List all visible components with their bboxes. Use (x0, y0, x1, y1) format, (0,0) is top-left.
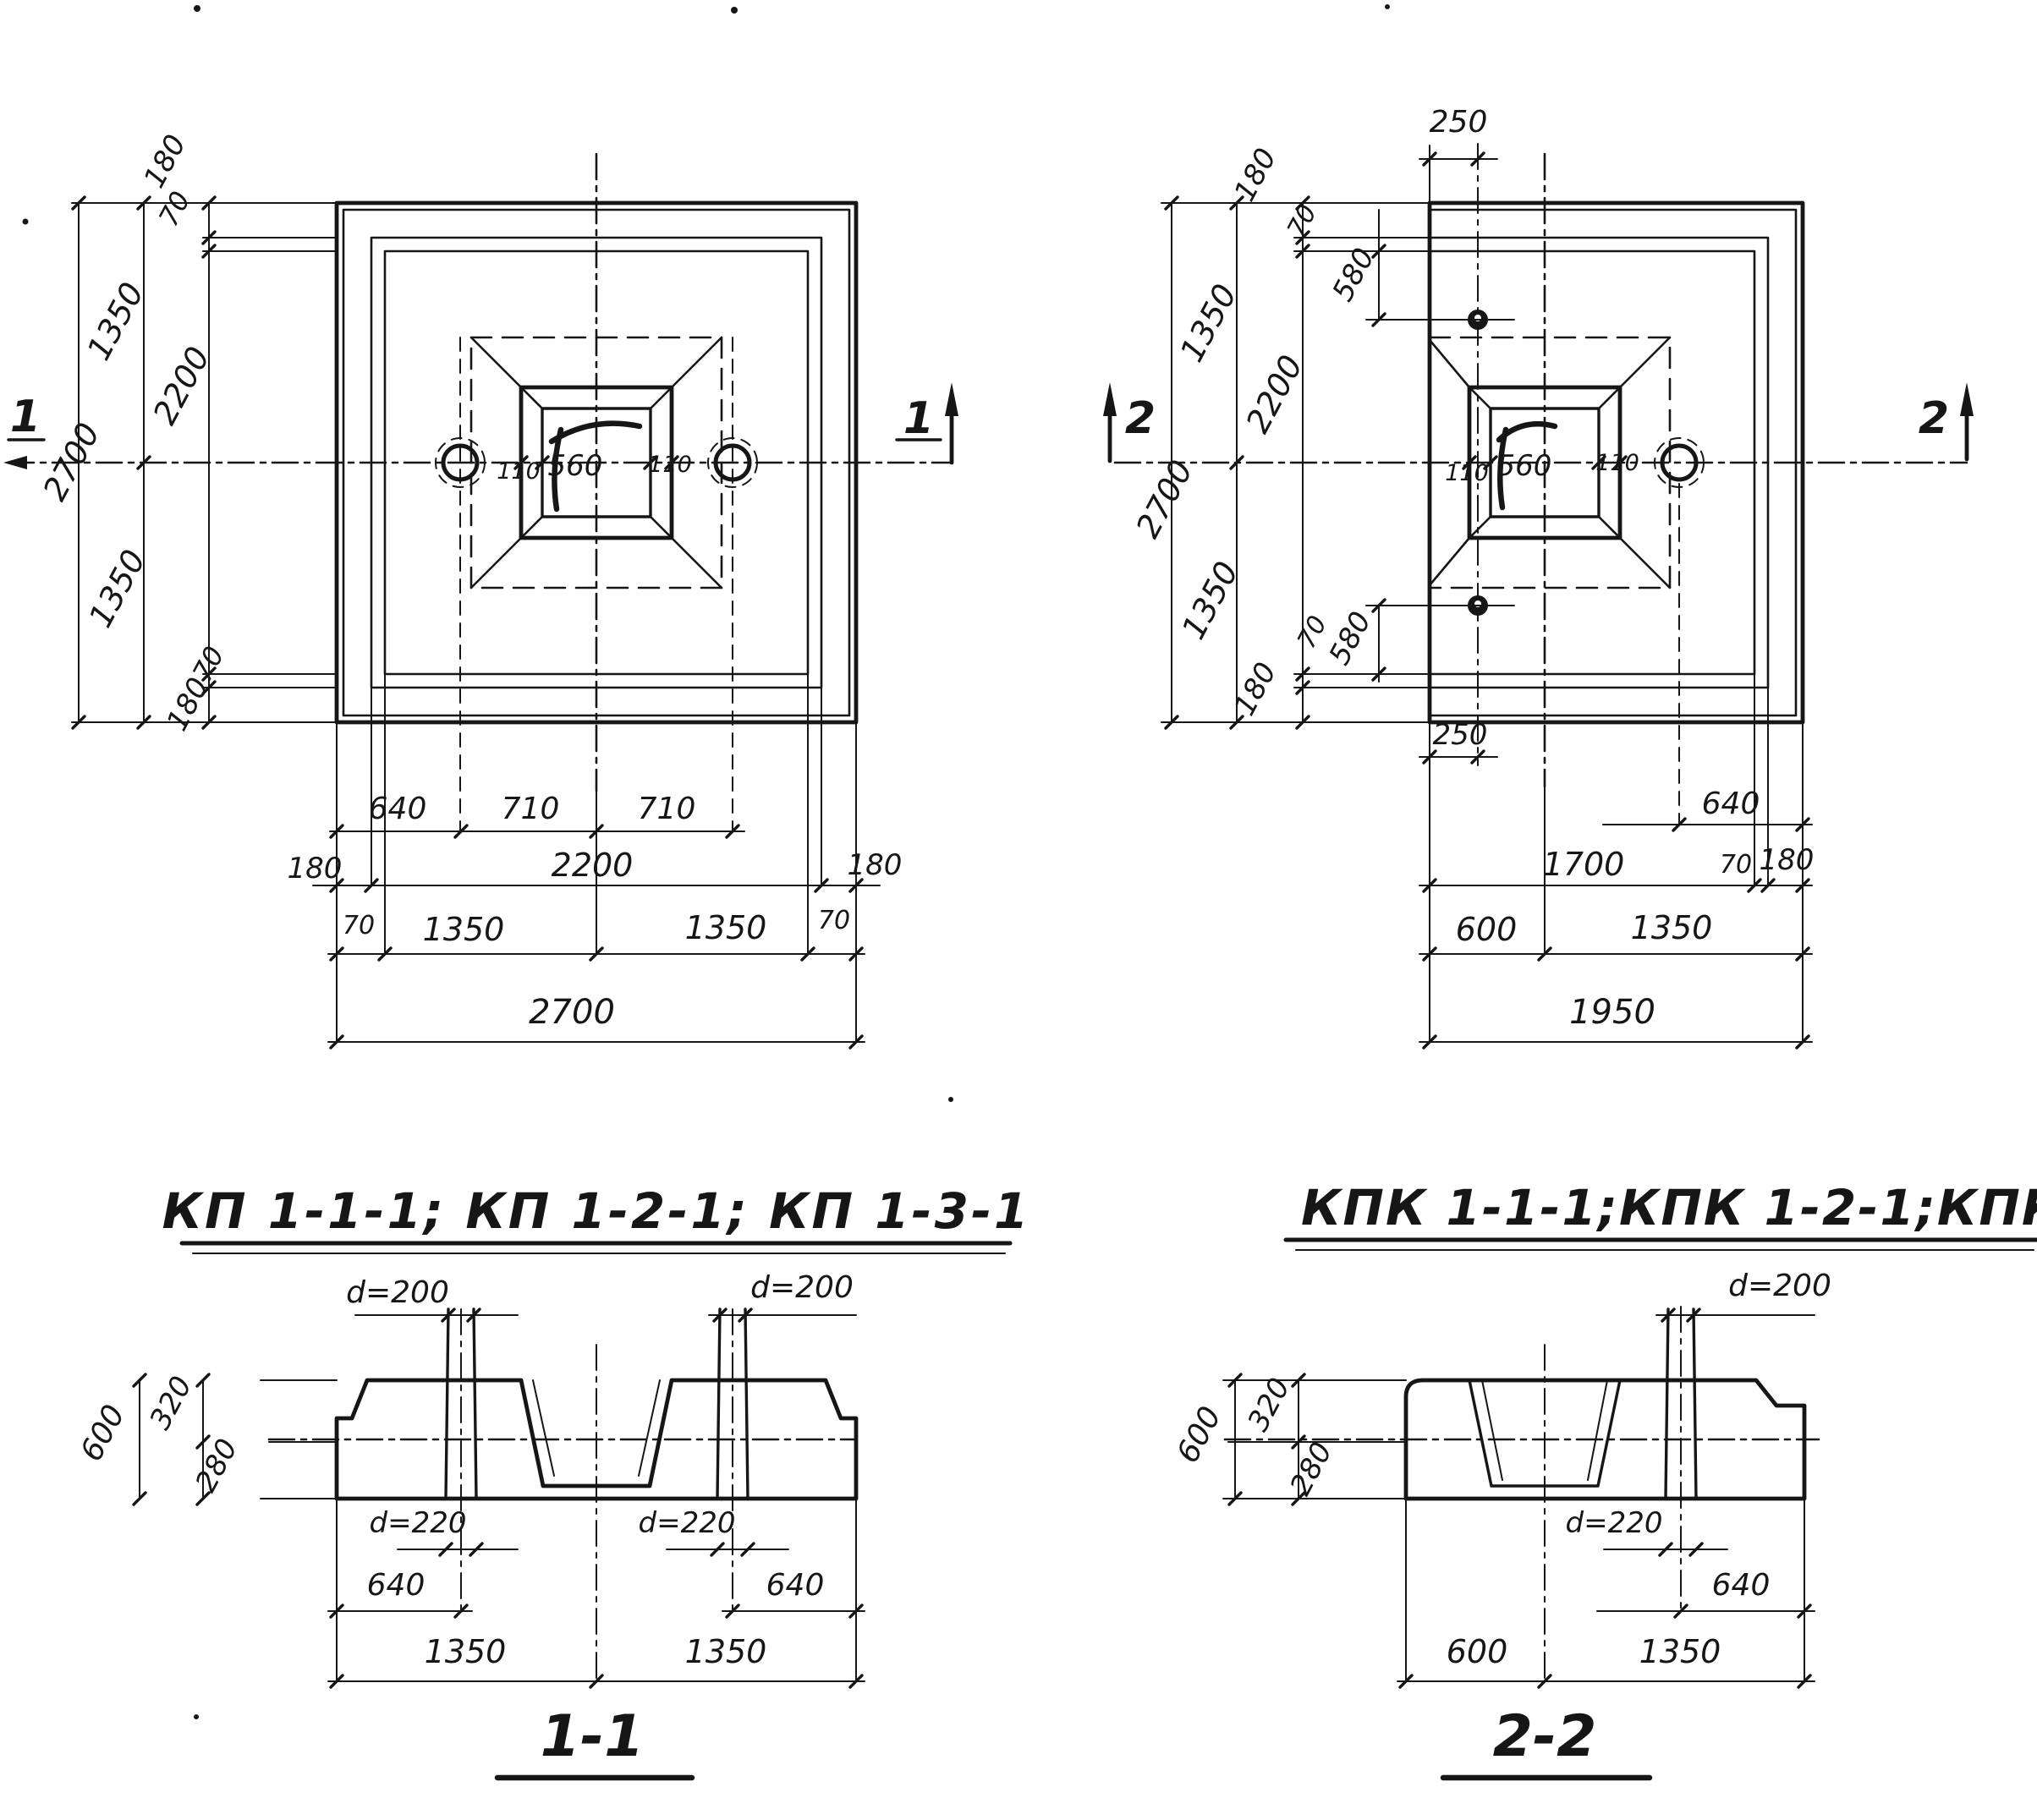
kp-dim-110-right: 110 (648, 452, 692, 478)
kpk-dim-180-row: 180 (1760, 843, 1815, 877)
s11-dim-d220-left: d=220 (370, 1506, 467, 1540)
kp-dim-70-top: 70 (152, 186, 197, 232)
kpk-dim-110-left: 110 (1445, 460, 1489, 486)
kpk-dim-1350-top: 1350 (1172, 278, 1244, 368)
kpk-dim-110-right: 110 (1595, 450, 1639, 476)
kpk-dim-250-top: 250 (1430, 105, 1488, 140)
s22-dim-1350: 1350 (1639, 1633, 1721, 1670)
s11-dim-d200-right: d=200 (750, 1270, 854, 1305)
kp-dim-2200-left: 2200 (145, 341, 217, 430)
kp-dim-1350-row-left: 1350 (423, 911, 505, 948)
kpk-dim-1350-bottom: 1350 (1174, 556, 1245, 645)
s11-dim-d220-right: d=220 (639, 1506, 736, 1540)
kp-title: КП 1-1-1; КП 1-2-1; КП 1-3-1 (162, 1182, 1031, 1240)
kp-dim-70-row-right: 70 (818, 906, 850, 935)
kp-marker-arrow-left (3, 456, 27, 469)
s11-axes (461, 1309, 733, 1681)
kpk-section-marker-left: 2 (1125, 393, 1156, 444)
kpk-dim-250-bottom: 250 (1433, 718, 1488, 752)
s22-axes (1545, 1307, 1681, 1681)
kpk-dim-600: 600 (1456, 911, 1518, 948)
s22-dim-d220: d=220 (1566, 1506, 1663, 1540)
kpk-section-marker-right: 2 (1919, 393, 1949, 444)
kpk-dim-180-top: 180 (1227, 143, 1283, 207)
kpk-title: КПК 1-1-1;КПК 1-2-1;КПК 1-3-1 (1301, 1179, 2037, 1236)
scan-speck (23, 219, 29, 225)
kp-section-marker-left: 1 (10, 392, 41, 442)
section-2-2: d=200 600 320 280 d=220 640 600 1350 2-2 (1171, 1269, 1831, 1778)
s11-title: 1-1 (541, 1703, 645, 1770)
s11-dim-1350-left: 1350 (425, 1633, 507, 1670)
section-1-1: d=200 d=200 600 320 280 d=220 d=220 640 … (74, 1270, 865, 1778)
s22-title: 2-2 (1493, 1703, 1597, 1770)
kpk-dim-560: 560 (1497, 449, 1552, 483)
foundation-drawing: 1 1 180 70 1350 2700 2200 1350 70 180 11… (0, 0, 2037, 1820)
kp-dim-1350-bottom: 1350 (81, 544, 152, 633)
s11-dim-320: 320 (143, 1371, 199, 1435)
s11-dim-640-right: 640 (766, 1568, 825, 1603)
kp-dim-640: 640 (369, 792, 427, 826)
kp-dim-1350-top: 1350 (80, 277, 151, 366)
scan-speck (731, 7, 738, 14)
kp-dim-710-b: 710 (638, 792, 696, 826)
kp-dim-1350-row-right: 1350 (685, 909, 767, 946)
s22-dim-600-height: 600 (1171, 1401, 1228, 1469)
s11-dim-600: 600 (74, 1400, 132, 1467)
kp-dim-110-left: 110 (497, 458, 541, 485)
s22-dim-640: 640 (1712, 1568, 1771, 1603)
s22-dim-280: 280 (1283, 1437, 1339, 1501)
kp-dim-180-row-right: 180 (848, 848, 903, 882)
scan-speck (1385, 4, 1390, 9)
kpk-dim-1350-row: 1350 (1631, 909, 1713, 946)
kpk-dim-2700: 2700 (1128, 454, 1200, 544)
kpk-dim-2200: 2200 (1238, 349, 1309, 439)
kp-dim-70-row-left: 70 (343, 911, 375, 940)
kpk-dim-lines (1161, 145, 1812, 1042)
s11-dim-640-left: 640 (367, 1568, 426, 1603)
s22-dim-d200: d=200 (1728, 1269, 1831, 1303)
scan-speck (948, 1097, 953, 1102)
plan-kpk: 2 2 250 180 70 580 1350 2700 2200 1350 7… (1103, 105, 2037, 1250)
scan-speck (194, 1714, 199, 1719)
s22-dim-600-bottom: 600 (1447, 1633, 1508, 1670)
kp-dim-2700-row: 2700 (529, 993, 615, 1032)
plan-kp: 1 1 180 70 1350 2700 2200 1350 70 180 11… (3, 129, 1030, 1253)
kp-dim-180-top: 180 (137, 129, 193, 194)
kp-dim-2200-row: 2200 (552, 847, 634, 884)
kpk-dim-1950: 1950 (1569, 993, 1655, 1032)
s22-dim-320: 320 (1241, 1373, 1297, 1437)
kp-marker-arrow-right (945, 382, 958, 416)
kpk-dim-70-row: 70 (1720, 850, 1752, 880)
kp-section-marker-right: 1 (903, 393, 934, 444)
kpk-dim-640: 640 (1702, 787, 1760, 821)
kpk-dim-580-top: 580 (1326, 243, 1381, 307)
scan-speck (194, 5, 200, 12)
kpk-dim-70-top: 70 (1282, 200, 1323, 242)
s11-dim-280: 280 (189, 1434, 244, 1498)
kpk-marker-arrow-right (1960, 382, 1974, 416)
s11-dim-1350-right: 1350 (685, 1633, 767, 1670)
kpk-dim-580-bottom: 580 (1322, 606, 1378, 671)
kpk-dim-1700: 1700 (1543, 846, 1625, 883)
kp-dim-710-a: 710 (502, 792, 560, 826)
kp-dim-560: 560 (548, 449, 603, 483)
kpk-marker-arrow-left (1103, 382, 1117, 416)
s11-dim-d200-left: d=200 (346, 1275, 449, 1310)
kp-dim-180-row-left: 180 (288, 852, 343, 885)
